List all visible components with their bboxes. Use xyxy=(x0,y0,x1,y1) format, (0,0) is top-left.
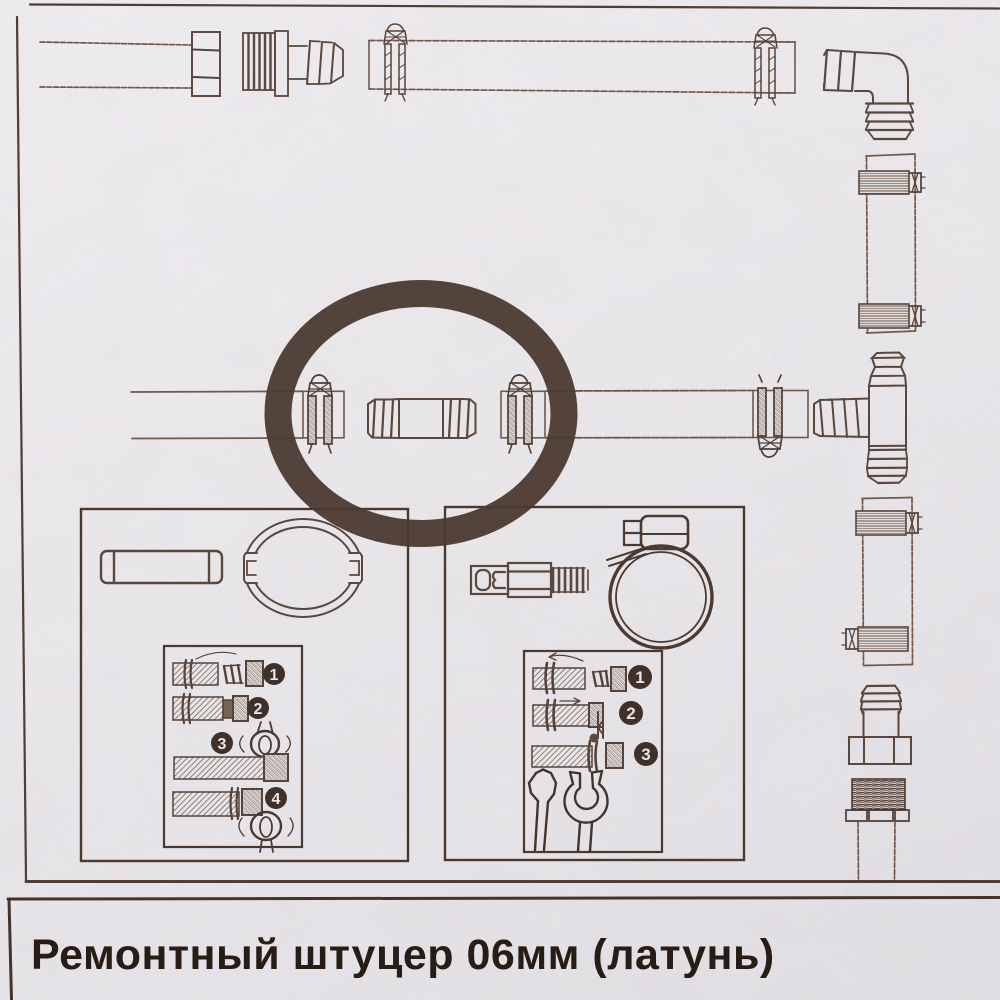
svg-text:2: 2 xyxy=(626,704,635,723)
svg-text:1: 1 xyxy=(270,667,279,684)
svg-text:4: 4 xyxy=(272,791,281,808)
svg-text:3: 3 xyxy=(641,745,650,764)
svg-text:2: 2 xyxy=(254,701,263,718)
svg-text:3: 3 xyxy=(218,736,227,753)
svg-text:1: 1 xyxy=(635,668,644,687)
svg-text:Ремонтный штуцер 06мм (латунь): Ремонтный штуцер 06мм (латунь) xyxy=(31,931,775,979)
